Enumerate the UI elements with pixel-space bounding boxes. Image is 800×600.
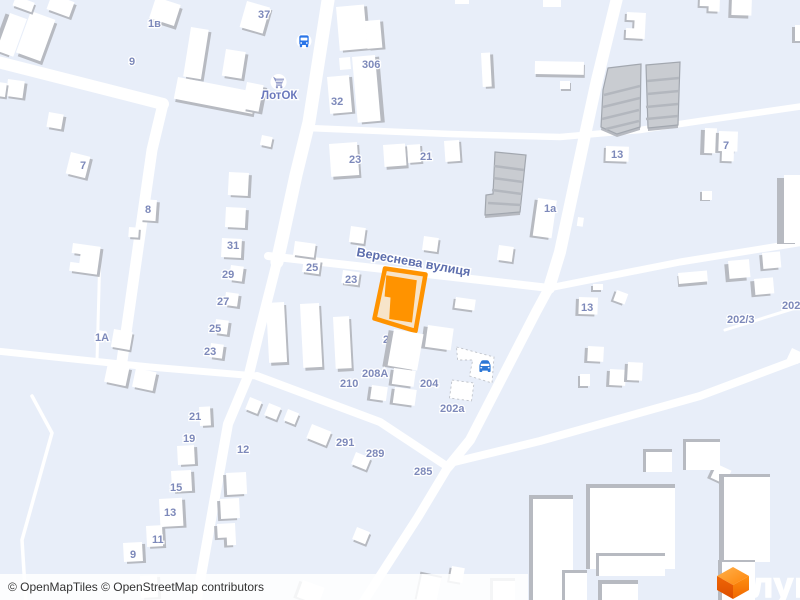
svg-text:285: 285 xyxy=(414,466,432,478)
svg-text:ЛотОК: ЛотОК xyxy=(261,90,298,102)
svg-text:13: 13 xyxy=(611,149,623,161)
svg-text:202: 202 xyxy=(782,300,800,312)
svg-text:210: 210 xyxy=(340,378,358,390)
svg-text:208А: 208А xyxy=(362,368,388,380)
svg-text:21: 21 xyxy=(420,151,432,163)
svg-text:21: 21 xyxy=(189,411,201,423)
svg-text:© OpenMapTiles © OpenStreetMap: © OpenMapTiles © OpenStreetMap contribut… xyxy=(8,580,264,594)
svg-text:15: 15 xyxy=(170,482,182,494)
svg-text:9: 9 xyxy=(129,56,135,68)
svg-text:31: 31 xyxy=(227,240,239,252)
svg-text:23: 23 xyxy=(345,274,357,286)
svg-text:204: 204 xyxy=(420,378,439,390)
svg-text:8: 8 xyxy=(145,204,151,216)
svg-text:23: 23 xyxy=(204,346,216,358)
svg-text:11: 11 xyxy=(152,534,164,546)
svg-text:306: 306 xyxy=(362,59,380,71)
svg-text:25: 25 xyxy=(209,323,221,335)
svg-text:7: 7 xyxy=(723,140,729,152)
svg-text:13: 13 xyxy=(581,302,593,314)
svg-text:37: 37 xyxy=(258,9,270,21)
svg-text:12: 12 xyxy=(237,444,249,456)
svg-text:1А: 1А xyxy=(95,332,109,344)
svg-text:1a: 1a xyxy=(544,203,557,215)
svg-text:202/3: 202/3 xyxy=(727,314,755,326)
svg-text:289: 289 xyxy=(366,448,384,460)
svg-text:19: 19 xyxy=(183,433,195,445)
svg-text:291: 291 xyxy=(336,437,354,449)
svg-text:9: 9 xyxy=(130,549,136,561)
svg-text:23: 23 xyxy=(349,154,361,166)
svg-text:лун: лун xyxy=(751,566,800,600)
svg-text:202а: 202а xyxy=(440,403,465,415)
svg-text:7: 7 xyxy=(80,160,86,172)
svg-text:13: 13 xyxy=(164,507,176,519)
svg-text:29: 29 xyxy=(222,269,234,281)
svg-text:27: 27 xyxy=(217,296,229,308)
svg-text:25: 25 xyxy=(306,262,318,274)
svg-text:1в: 1в xyxy=(148,18,161,30)
svg-text:32: 32 xyxy=(331,96,343,108)
